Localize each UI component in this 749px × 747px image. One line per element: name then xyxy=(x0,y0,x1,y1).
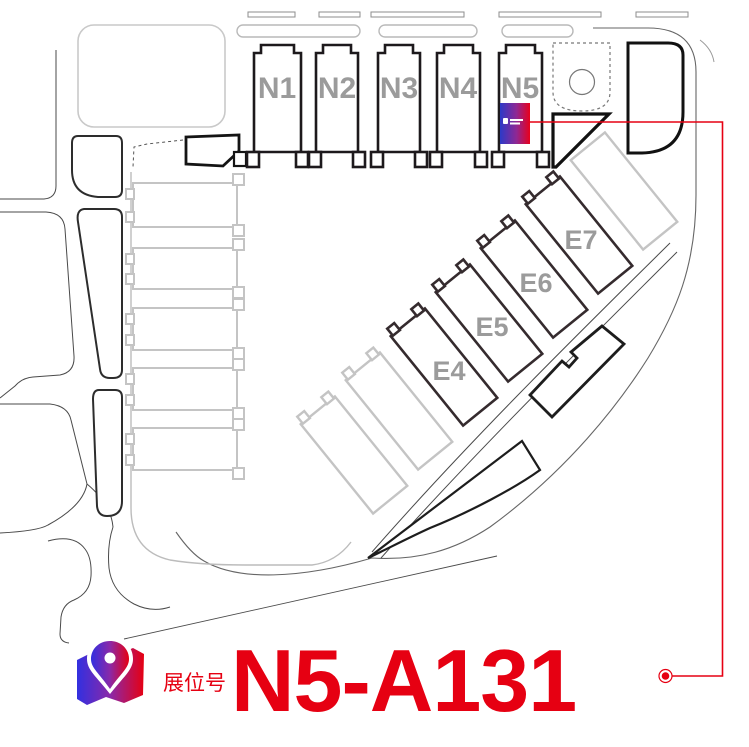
venue-map: N1 N2 N3 N4 N5 xyxy=(0,0,749,747)
road-bottom-straight xyxy=(124,556,497,639)
west-hall xyxy=(126,359,244,419)
block-b xyxy=(78,209,122,378)
d-building xyxy=(628,43,683,153)
booth-marker[interactable] xyxy=(500,103,530,144)
hall-n2-label: N2 xyxy=(318,72,356,105)
legend: 展位号 N5-A131 xyxy=(77,631,576,730)
road-left-lower xyxy=(0,404,87,533)
road-island-curl xyxy=(48,539,91,643)
block-c xyxy=(93,390,122,516)
west-hall xyxy=(126,174,244,236)
hall-n5-label: N5 xyxy=(501,72,539,105)
dashed-path xyxy=(133,140,183,167)
hall-n3[interactable] xyxy=(371,45,427,167)
pavilion-circle xyxy=(570,70,595,95)
parking-lot xyxy=(78,25,225,127)
hall-n1[interactable] xyxy=(247,45,308,167)
hall-n4[interactable] xyxy=(430,45,487,167)
west-hall xyxy=(126,299,244,359)
hall-n2[interactable] xyxy=(309,45,365,167)
hall-e4-label: E4 xyxy=(432,356,465,386)
west-hall xyxy=(126,239,244,298)
hall-e7-label: E7 xyxy=(564,225,597,255)
hall-n1-label: N1 xyxy=(258,72,296,105)
top-canopy-strips xyxy=(237,12,688,37)
hall-e6-label: E6 xyxy=(519,268,552,298)
route-endpoint-dot xyxy=(662,672,670,680)
east-halls xyxy=(386,170,633,425)
map-pin-icon xyxy=(77,637,144,705)
venue-map-page: N1 N2 N3 N4 N5 xyxy=(0,0,749,747)
block-a xyxy=(72,136,122,197)
hall-e5-label: E5 xyxy=(475,312,508,342)
block-pentagon xyxy=(186,135,239,166)
booth-number: N5-A131 xyxy=(231,631,576,730)
wedge-building xyxy=(368,441,540,558)
hall-n4-label: N4 xyxy=(439,72,478,105)
road-left-upper xyxy=(0,212,74,398)
diagonal-building xyxy=(530,326,624,417)
road-corner-outer-arc xyxy=(700,40,714,62)
road-top-left-junction xyxy=(0,50,56,199)
west-hall xyxy=(126,419,244,479)
west-halls xyxy=(126,174,244,479)
hall-n3-label: N3 xyxy=(380,72,418,105)
block-foot xyxy=(234,152,246,166)
booth-number-caption: 展位号 xyxy=(163,672,226,695)
